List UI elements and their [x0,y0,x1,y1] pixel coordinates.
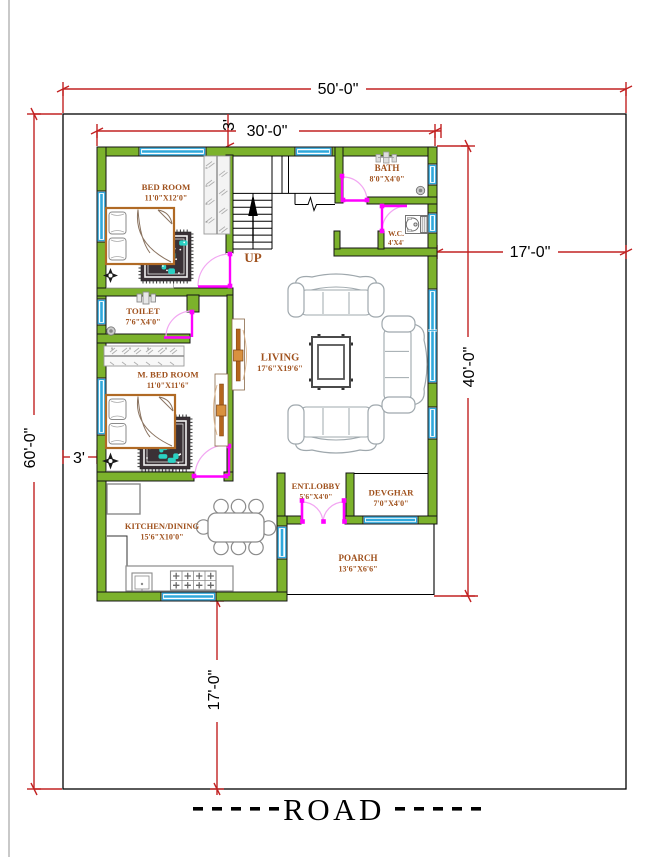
svg-text:8'0"X4'0": 8'0"X4'0" [369,175,404,184]
svg-text:KITCHEN/DINING: KITCHEN/DINING [125,521,200,531]
svg-text:BATH: BATH [375,163,400,173]
svg-text:ROAD: ROAD [283,792,385,827]
svg-text:17'-0": 17'-0" [206,670,223,711]
svg-text:W.C.: W.C. [388,229,404,238]
svg-text:40'-0": 40'-0" [461,347,478,388]
svg-text:3': 3' [221,119,238,131]
svg-text:TOILET: TOILET [126,306,160,316]
svg-text:UP: UP [244,250,261,265]
svg-text:13'6"X6'6": 13'6"X6'6" [338,565,377,574]
svg-text:POARCH: POARCH [339,553,378,563]
svg-text:7'0"X4'0": 7'0"X4'0" [373,499,408,508]
svg-text:60'-0": 60'-0" [22,428,39,469]
svg-text:3': 3' [73,450,85,467]
svg-text:7'6"X4'0": 7'6"X4'0" [125,318,160,327]
svg-text:17'6"X19'6": 17'6"X19'6" [257,363,303,373]
svg-text:M. BED ROOM: M. BED ROOM [137,370,199,380]
svg-text:11'0"X12'0": 11'0"X12'0" [145,194,188,203]
svg-text:ENT.LOBBY: ENT.LOBBY [292,481,341,491]
svg-text:LIVING: LIVING [261,353,300,364]
svg-text:DEVGHAR: DEVGHAR [369,488,415,498]
svg-text:30'-0": 30'-0" [247,123,288,140]
svg-text:BED ROOM: BED ROOM [142,182,191,192]
svg-text:5'6"X4'0": 5'6"X4'0" [300,492,333,501]
svg-text:15'6"X10'0": 15'6"X10'0" [140,533,183,542]
svg-text:17'-0": 17'-0" [510,244,551,261]
svg-text:11'0"X11'6": 11'0"X11'6" [147,381,189,390]
svg-text:4'X4': 4'X4' [388,239,404,247]
svg-text:50'-0": 50'-0" [318,81,359,98]
